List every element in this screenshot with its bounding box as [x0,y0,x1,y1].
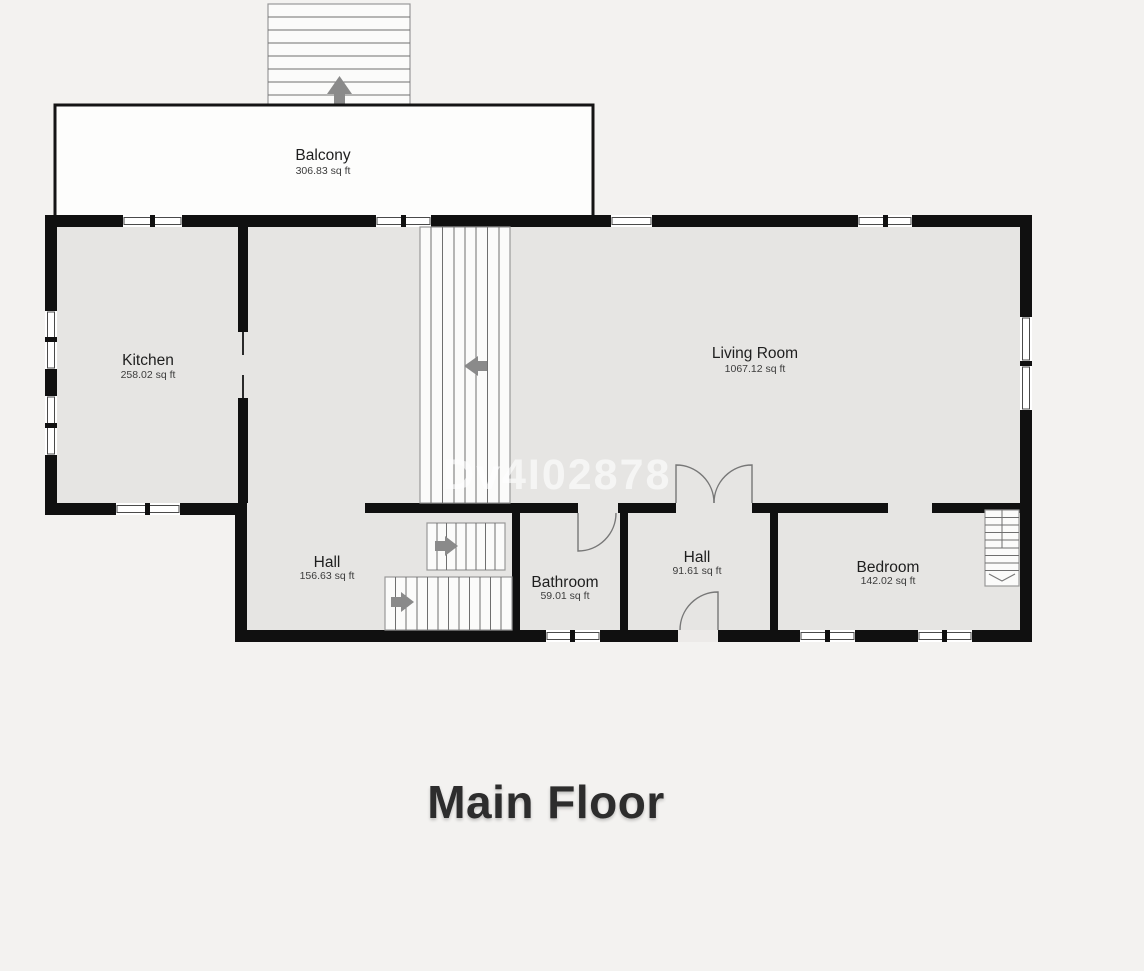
window [858,215,912,227]
entry-door-gap [678,630,718,642]
window [123,215,182,227]
exterior-stairs [268,4,410,105]
window [1020,366,1032,410]
balcony-area: 306.83 sq ft [296,165,351,177]
wall-hall-right [770,503,778,630]
balcony-room: Balcony 306.83 sq ft [55,105,593,222]
window [800,630,855,642]
hall-main-area: 156.63 sq ft [300,570,355,582]
hall-stairs-upper [427,523,505,570]
window [45,396,57,455]
wall-right [1020,215,1032,642]
kitchen-label: Kitchen [122,352,174,369]
living-room-label: Living Room [712,345,798,362]
room-label-bedroom: Bedroom 142.02 sq ft [857,559,920,587]
kitchen-area: 258.02 sq ft [121,369,176,381]
hall-entry-area: 91.61 sq ft [672,565,721,577]
hall-main-label: Hall [314,554,341,571]
watermark: Dv4I02878 [443,451,671,499]
living-room-area: 1067.12 sq ft [725,363,786,375]
floor-title: Main Floor [427,776,665,828]
bedroom-area: 142.02 sq ft [861,575,916,587]
bathroom-label: Bathroom [531,574,598,591]
bedroom-label: Bedroom [857,559,920,576]
wall-lower-left [235,503,247,642]
balcony-label: Balcony [295,147,350,164]
floor-plan: Balcony 306.83 sq ft [0,0,1144,971]
room-label-bathroom: Bathroom 59.01 sq ft [531,574,598,602]
hall-stairs-lower [385,577,512,630]
window [45,311,57,369]
window [611,215,652,227]
window [918,630,972,642]
wall-bathroom-left [512,503,520,630]
wall-mid-1 [365,503,578,513]
wall-kitchen-right-lower [238,398,248,503]
bedroom-stairs [985,510,1019,586]
window [376,215,431,227]
wall-kitchen-right-upper [238,227,248,332]
wall-bathroom-right [620,503,628,630]
window [1020,317,1032,361]
bathroom-area: 59.01 sq ft [540,590,589,602]
hall-entry-label: Hall [684,549,711,566]
window [546,630,600,642]
window [116,503,180,515]
room-label-living-room: Living Room 1067.12 sq ft [712,345,798,375]
room-label-kitchen: Kitchen 258.02 sq ft [121,352,176,381]
wall-bottom [235,630,1032,642]
